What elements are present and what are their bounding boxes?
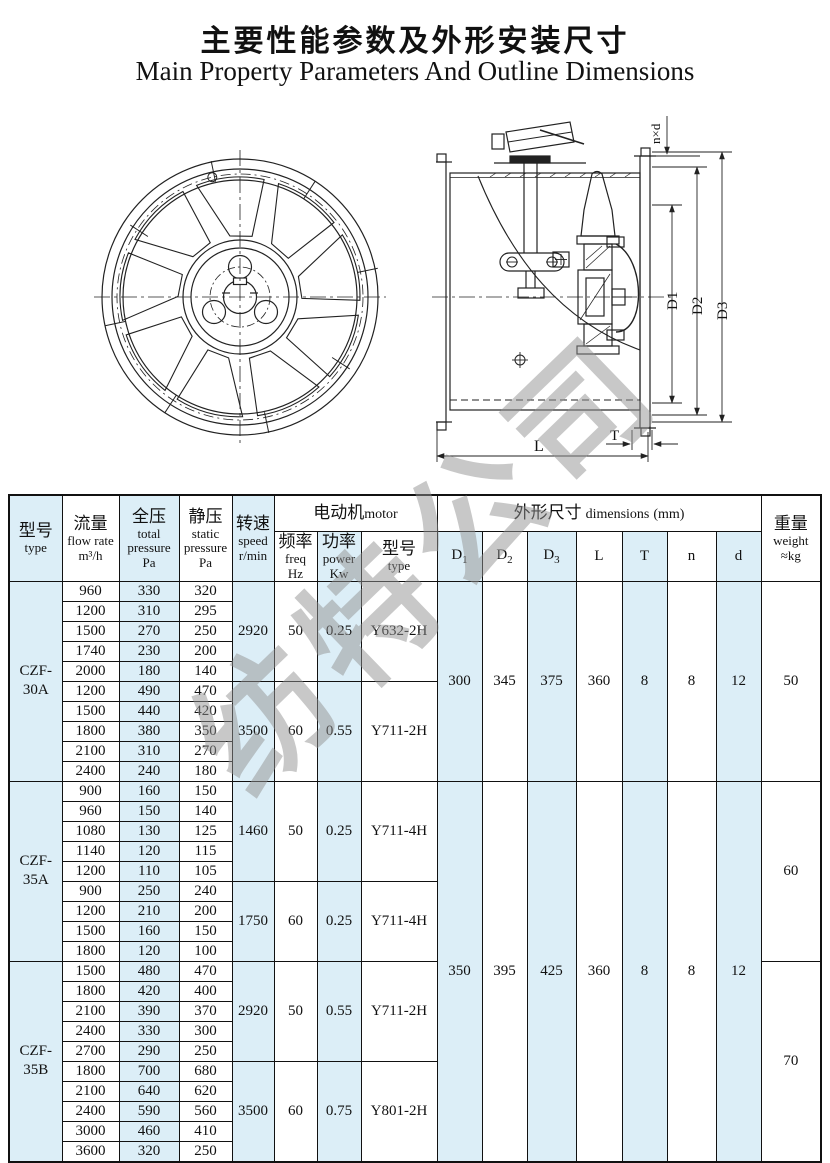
col-header-T: T <box>622 531 667 581</box>
motor-type-cell: Y711-2H <box>361 961 437 1061</box>
power-cell: 0.25 <box>317 581 361 681</box>
dim-cell: 12 <box>716 581 761 781</box>
flow-cell: 1740 <box>62 641 119 661</box>
static-pressure-cell: 470 <box>179 681 232 701</box>
total-pressure-cell: 120 <box>119 941 179 961</box>
dim-cell: 8 <box>667 581 716 781</box>
dim-cell: 8 <box>622 581 667 781</box>
total-pressure-cell: 180 <box>119 661 179 681</box>
table-row: CZF-35A9001601501460500.25Y711-4H3503954… <box>9 781 821 801</box>
flow-cell: 960 <box>62 801 119 821</box>
flow-cell: 2400 <box>62 1021 119 1041</box>
total-pressure-cell: 420 <box>119 981 179 1001</box>
col-header-d3: D3 <box>527 531 576 581</box>
motor-type-cell: Y711-4H <box>361 881 437 961</box>
speed-cell: 3500 <box>232 1061 274 1162</box>
total-pressure-cell: 440 <box>119 701 179 721</box>
static-pressure-cell: 200 <box>179 641 232 661</box>
flow-cell: 2100 <box>62 1081 119 1101</box>
static-pressure-cell: 140 <box>179 801 232 821</box>
weight-cell: 50 <box>761 581 821 781</box>
total-pressure-cell: 120 <box>119 841 179 861</box>
power-cell: 0.55 <box>317 681 361 781</box>
total-pressure-cell: 590 <box>119 1101 179 1121</box>
type-cell: CZF-35B <box>9 961 62 1162</box>
total-pressure-cell: 210 <box>119 901 179 921</box>
static-pressure-cell: 680 <box>179 1061 232 1081</box>
col-header-d2: D2 <box>482 531 527 581</box>
flow-cell: 1140 <box>62 841 119 861</box>
fan-drawings-svg: n×d D1 D2 D3 L T <box>0 110 830 482</box>
freq-cell: 50 <box>274 581 317 681</box>
d2-label: D2 <box>690 297 706 315</box>
col-header-static-pressure: 静压 static pressure Pa <box>179 495 232 581</box>
static-pressure-cell: 100 <box>179 941 232 961</box>
col-header-d1: D1 <box>437 531 482 581</box>
static-pressure-cell: 300 <box>179 1021 232 1041</box>
col-header-weight: 重量 weight ≈kg <box>761 495 821 581</box>
static-pressure-cell: 180 <box>179 761 232 781</box>
total-pressure-cell: 160 <box>119 781 179 801</box>
flow-cell: 1500 <box>62 921 119 941</box>
table-row: CZF-30A9603303202920500.25Y632-2H3003453… <box>9 581 821 601</box>
flow-cell: 1500 <box>62 701 119 721</box>
flow-cell: 900 <box>62 781 119 801</box>
freq-cell: 60 <box>274 881 317 961</box>
dim-cell: 360 <box>576 781 622 1162</box>
flow-cell: 1200 <box>62 861 119 881</box>
total-pressure-cell: 110 <box>119 861 179 881</box>
total-pressure-cell: 380 <box>119 721 179 741</box>
spec-table: 型号 type 流量 flow rate m³/h 全压 total press… <box>8 494 822 1163</box>
static-pressure-cell: 150 <box>179 781 232 801</box>
spec-table-body: CZF-30A9603303202920500.25Y632-2H3003453… <box>9 581 821 1162</box>
t-label: T <box>610 428 619 444</box>
power-cell: 0.55 <box>317 961 361 1061</box>
flow-cell: 1500 <box>62 621 119 641</box>
static-pressure-cell: 420 <box>179 701 232 721</box>
static-pressure-cell: 400 <box>179 981 232 1001</box>
power-cell: 0.75 <box>317 1061 361 1162</box>
static-pressure-cell: 410 <box>179 1121 232 1141</box>
flow-cell: 2100 <box>62 741 119 761</box>
col-header-motor-type: 型号 type <box>361 531 437 581</box>
static-pressure-cell: 240 <box>179 881 232 901</box>
flow-cell: 900 <box>62 881 119 901</box>
motor-type-cell: Y711-2H <box>361 681 437 781</box>
total-pressure-cell: 640 <box>119 1081 179 1101</box>
total-pressure-cell: 480 <box>119 961 179 981</box>
col-group-dimensions: 外形尺寸 dimensions (mm) <box>437 495 761 531</box>
col-header-total-pressure: 全压 total pressure Pa <box>119 495 179 581</box>
total-pressure-cell: 460 <box>119 1121 179 1141</box>
static-pressure-cell: 115 <box>179 841 232 861</box>
dim-cell: 8 <box>622 781 667 1162</box>
static-pressure-cell: 250 <box>179 1041 232 1061</box>
speed-cell: 3500 <box>232 681 274 781</box>
d3-label: D3 <box>715 302 731 320</box>
flow-cell: 1800 <box>62 1061 119 1081</box>
flow-cell: 3000 <box>62 1121 119 1141</box>
col-header-freq: 频率 freq Hz <box>274 531 317 581</box>
static-pressure-cell: 470 <box>179 961 232 981</box>
flow-cell: 1200 <box>62 901 119 921</box>
flow-cell: 3600 <box>62 1141 119 1162</box>
static-pressure-cell: 150 <box>179 921 232 941</box>
total-pressure-cell: 390 <box>119 1001 179 1021</box>
flow-cell: 1800 <box>62 981 119 1001</box>
technical-drawings: n×d D1 D2 D3 L T <box>0 110 830 482</box>
total-pressure-cell: 310 <box>119 741 179 761</box>
power-cell: 0.25 <box>317 781 361 881</box>
freq-cell: 50 <box>274 781 317 881</box>
dim-cell: 345 <box>482 581 527 781</box>
flow-cell: 2100 <box>62 1001 119 1021</box>
dim-cell: 395 <box>482 781 527 1162</box>
col-header-d: d <box>716 531 761 581</box>
flow-cell: 1500 <box>62 961 119 981</box>
static-pressure-cell: 250 <box>179 1141 232 1162</box>
total-pressure-cell: 150 <box>119 801 179 821</box>
total-pressure-cell: 240 <box>119 761 179 781</box>
static-pressure-cell: 295 <box>179 601 232 621</box>
flow-cell: 1800 <box>62 721 119 741</box>
page-title-english: Main Property Parameters And Outline Dim… <box>0 56 830 87</box>
total-pressure-cell: 490 <box>119 681 179 701</box>
total-pressure-cell: 320 <box>119 1141 179 1162</box>
dim-cell: 12 <box>716 781 761 1162</box>
static-pressure-cell: 560 <box>179 1101 232 1121</box>
static-pressure-cell: 620 <box>179 1081 232 1101</box>
freq-cell: 60 <box>274 681 317 781</box>
total-pressure-cell: 130 <box>119 821 179 841</box>
weight-cell: 60 <box>761 781 821 961</box>
static-pressure-cell: 125 <box>179 821 232 841</box>
flow-cell: 2700 <box>62 1041 119 1061</box>
flow-cell: 1080 <box>62 821 119 841</box>
static-pressure-cell: 350 <box>179 721 232 741</box>
total-pressure-cell: 250 <box>119 881 179 901</box>
col-header-flow: 流量 flow rate m³/h <box>62 495 119 581</box>
col-header-speed: 转速 speed r/min <box>232 495 274 581</box>
total-pressure-cell: 160 <box>119 921 179 941</box>
fan-section-view <box>432 122 672 436</box>
speed-cell: 2920 <box>232 581 274 681</box>
nxd-label: n×d <box>648 123 663 144</box>
static-pressure-cell: 270 <box>179 741 232 761</box>
total-pressure-cell: 230 <box>119 641 179 661</box>
freq-cell: 50 <box>274 961 317 1061</box>
flow-cell: 960 <box>62 581 119 601</box>
static-pressure-cell: 320 <box>179 581 232 601</box>
total-pressure-cell: 330 <box>119 581 179 601</box>
flow-cell: 1200 <box>62 681 119 701</box>
static-pressure-cell: 200 <box>179 901 232 921</box>
total-pressure-cell: 270 <box>119 621 179 641</box>
power-cell: 0.25 <box>317 881 361 961</box>
col-header-n: n <box>667 531 716 581</box>
motor-type-cell: Y632-2H <box>361 581 437 681</box>
weight-cell: 70 <box>761 961 821 1162</box>
fan-front-view <box>94 150 386 446</box>
flow-cell: 2400 <box>62 1101 119 1121</box>
motor-type-cell: Y801-2H <box>361 1061 437 1162</box>
static-pressure-cell: 370 <box>179 1001 232 1021</box>
total-pressure-cell: 700 <box>119 1061 179 1081</box>
col-header-type: 型号 type <box>9 495 62 581</box>
d1-label: D1 <box>665 292 681 310</box>
static-pressure-cell: 250 <box>179 621 232 641</box>
page-title-chinese: 主要性能参数及外形安装尺寸 <box>0 16 830 60</box>
type-cell: CZF-30A <box>9 581 62 781</box>
static-pressure-cell: 140 <box>179 661 232 681</box>
dim-cell: 425 <box>527 781 576 1162</box>
flow-cell: 2400 <box>62 761 119 781</box>
dim-cell: 375 <box>527 581 576 781</box>
l-label: L <box>534 438 544 455</box>
dim-cell: 300 <box>437 581 482 781</box>
col-header-L: L <box>576 531 622 581</box>
dim-cell: 350 <box>437 781 482 1162</box>
freq-cell: 60 <box>274 1061 317 1162</box>
speed-cell: 1750 <box>232 881 274 961</box>
motor-type-cell: Y711-4H <box>361 781 437 881</box>
speed-cell: 1460 <box>232 781 274 881</box>
col-group-motor: 电动机motor <box>274 495 437 531</box>
flow-cell: 1200 <box>62 601 119 621</box>
total-pressure-cell: 330 <box>119 1021 179 1041</box>
dim-cell: 8 <box>667 781 716 1162</box>
flow-cell: 1800 <box>62 941 119 961</box>
dim-cell: 360 <box>576 581 622 781</box>
speed-cell: 2920 <box>232 961 274 1061</box>
static-pressure-cell: 105 <box>179 861 232 881</box>
flow-cell: 2000 <box>62 661 119 681</box>
total-pressure-cell: 310 <box>119 601 179 621</box>
type-cell: CZF-35A <box>9 781 62 961</box>
total-pressure-cell: 290 <box>119 1041 179 1061</box>
col-header-power: 功率 power Kw <box>317 531 361 581</box>
